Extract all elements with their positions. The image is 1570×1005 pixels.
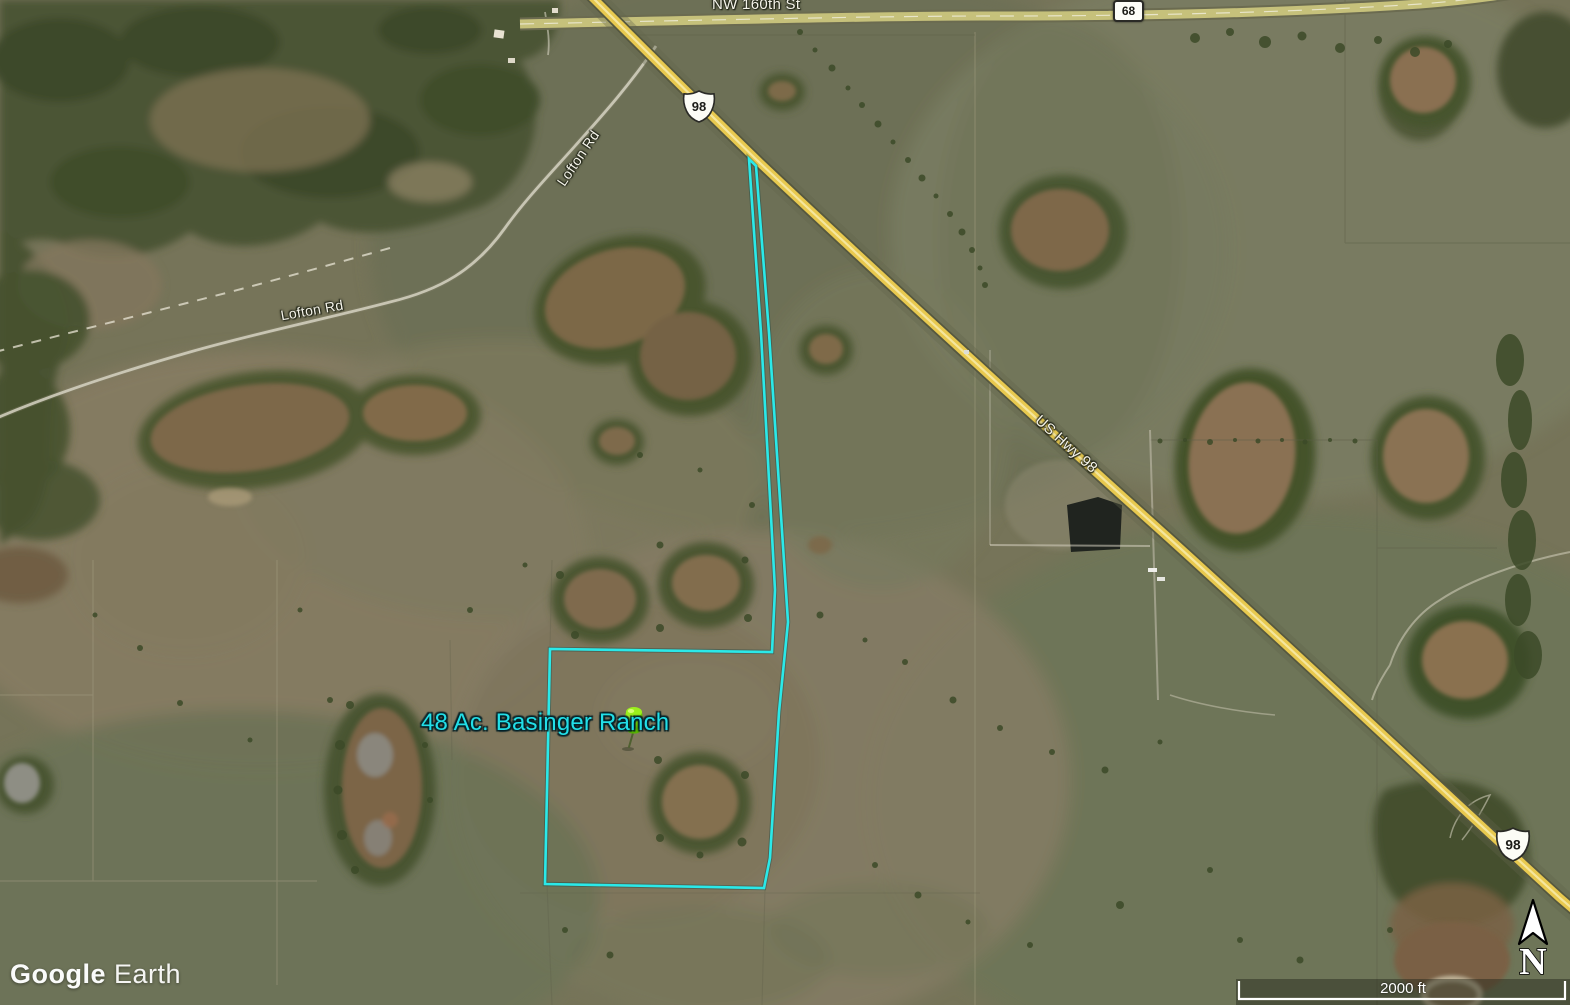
north-arrow-letter: N bbox=[1519, 941, 1546, 980]
route-shield-us98-top: 98 bbox=[681, 89, 717, 123]
route-shield-68: 68 bbox=[1113, 0, 1144, 22]
logo-google-word: Google bbox=[10, 959, 106, 990]
scale-bar: 2000 ft bbox=[1236, 979, 1570, 1005]
route-shield-us98-bottom-number: 98 bbox=[1505, 837, 1521, 852]
north-arrow: N bbox=[1504, 896, 1562, 980]
dark-pond bbox=[1067, 497, 1122, 552]
satellite-map-canvas[interactable] bbox=[0, 0, 1570, 1005]
placemark-label[interactable]: 48 Ac. Basinger Ranch bbox=[421, 709, 669, 737]
route-shield-us98-top-number: 98 bbox=[692, 99, 706, 114]
north-arrow-glyph bbox=[1519, 900, 1547, 944]
route-shield-68-number: 68 bbox=[1122, 4, 1135, 18]
google-earth-logo: Google Earth bbox=[10, 959, 181, 990]
google-earth-viewport[interactable]: NW 160th St 68 98 98 US Hwy 98 Lofton Rd… bbox=[0, 0, 1570, 1005]
road-label-nw-160th-st: NW 160th St bbox=[712, 0, 800, 13]
route-shield-us98-bottom: 98 bbox=[1494, 826, 1532, 862]
logo-earth-word: Earth bbox=[114, 959, 181, 990]
scale-bar-label: 2000 ft bbox=[1236, 980, 1570, 997]
